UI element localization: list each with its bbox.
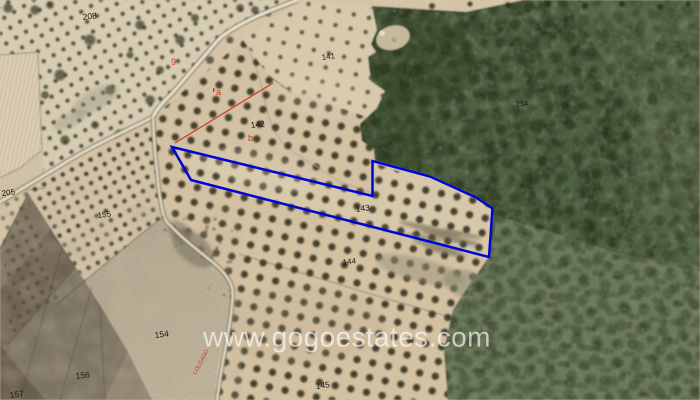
svg-text:www.gogoestates.com: www.gogoestates.com	[202, 322, 491, 353]
svg-text:b: b	[248, 133, 253, 143]
svg-text:9: 9	[171, 57, 176, 67]
svg-text:156: 156	[75, 369, 91, 381]
svg-text:155: 155	[97, 209, 112, 220]
svg-text:a: a	[216, 87, 221, 97]
svg-text:205: 205	[1, 187, 16, 198]
svg-text:157: 157	[9, 388, 25, 400]
svg-text:144: 144	[342, 256, 357, 267]
svg-text:143: 143	[355, 202, 371, 214]
svg-text:141: 141	[321, 51, 336, 62]
svg-text:142: 142	[250, 118, 266, 130]
svg-text:154: 154	[154, 328, 170, 340]
svg-text:234: 234	[515, 99, 529, 109]
svg-text:208: 208	[82, 10, 98, 22]
svg-text:145: 145	[315, 379, 331, 391]
